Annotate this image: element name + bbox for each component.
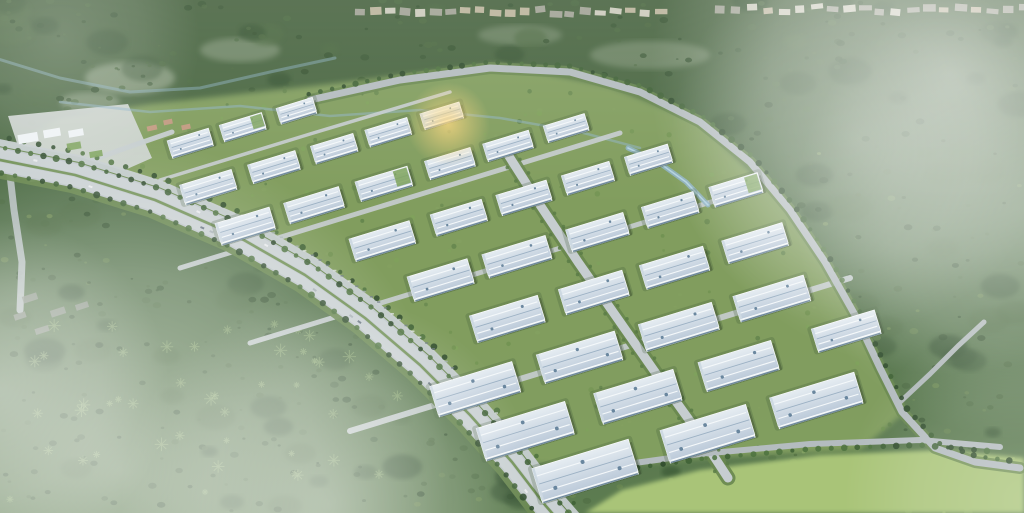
rendering-canvas	[0, 0, 1024, 513]
atmosphere-layer	[0, 0, 1024, 513]
industrial-park-aerial-rendering	[0, 0, 1024, 513]
